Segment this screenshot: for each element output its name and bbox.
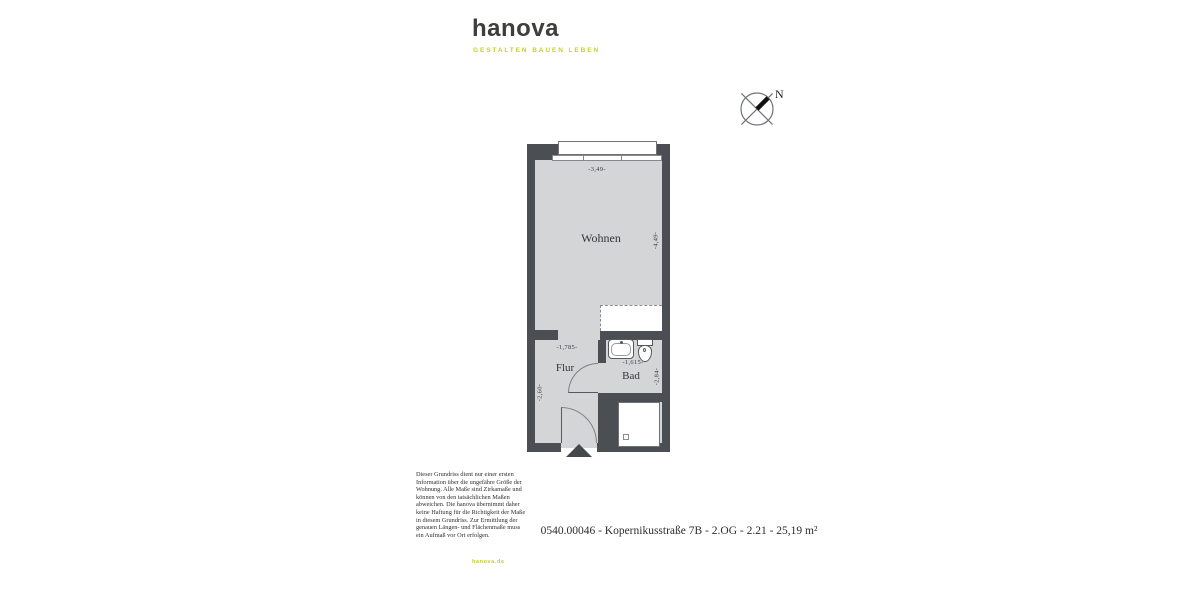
room-label-bad: Bad: [601, 370, 661, 382]
window-icon: [558, 141, 657, 155]
wall-bad-south: [598, 393, 662, 402]
wall-flur-stub: [529, 330, 558, 340]
kitchenette-counter: [600, 305, 662, 331]
room-label-flur: Flur: [535, 362, 595, 374]
toilet-flush-icon: [643, 348, 646, 352]
window-sill-tick: [621, 155, 622, 161]
brand-logo: hanova: [472, 16, 559, 42]
shaft-area: [618, 402, 660, 447]
wall-bad-west: [598, 340, 606, 363]
dimension-flur-depth: -2,60-: [537, 371, 544, 415]
sink-icon: [608, 339, 634, 359]
apartment-address-line: 0540.00046 - Kopernikusstraße 7B - 2.OG …: [518, 525, 840, 537]
compass-north-label: N: [775, 87, 784, 101]
window-sill-tick: [583, 155, 584, 161]
website-url: hanova.de: [472, 559, 505, 565]
dimension-wohnen-width: -3,49-: [575, 166, 619, 173]
sink-basin: [611, 343, 631, 356]
dimension-bad-width: -1,615-: [611, 359, 655, 366]
sink-tap: [620, 341, 623, 344]
dimension-bad-depth: -2,84-: [654, 355, 661, 399]
dimension-wohnen-depth: -4,49-: [653, 219, 660, 263]
window-sill: [552, 155, 662, 161]
brand-tagline: GESTALTEN BAUEN LEBEN: [473, 47, 600, 54]
shaft-marker-icon: [623, 434, 629, 440]
compass-north-icon: N: [733, 81, 793, 133]
wall-shaft-west: [598, 402, 618, 452]
dimension-flur-width: -1,785-: [545, 344, 589, 351]
entrance-arrow-icon: [566, 444, 592, 457]
room-label-wohnen: Wohnen: [561, 231, 641, 246]
